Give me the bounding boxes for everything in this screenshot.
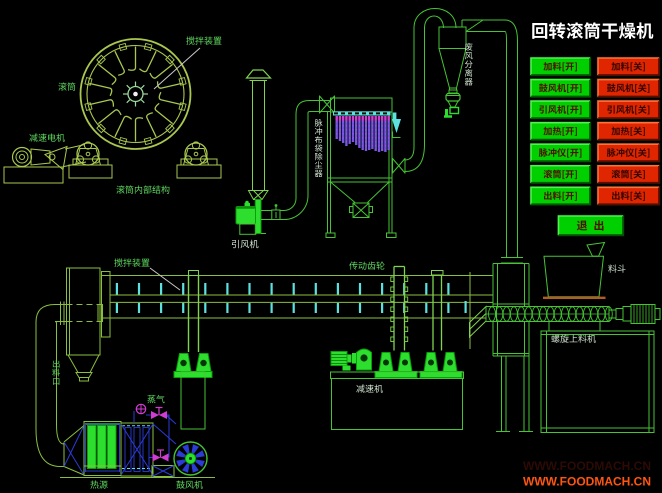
- svg-text:WWW.FOODMACH.CN: WWW.FOODMACH.CN: [523, 475, 651, 489]
- svg-text:WWW.FOODMACH.CN: WWW.FOODMACH.CN: [523, 459, 651, 473]
